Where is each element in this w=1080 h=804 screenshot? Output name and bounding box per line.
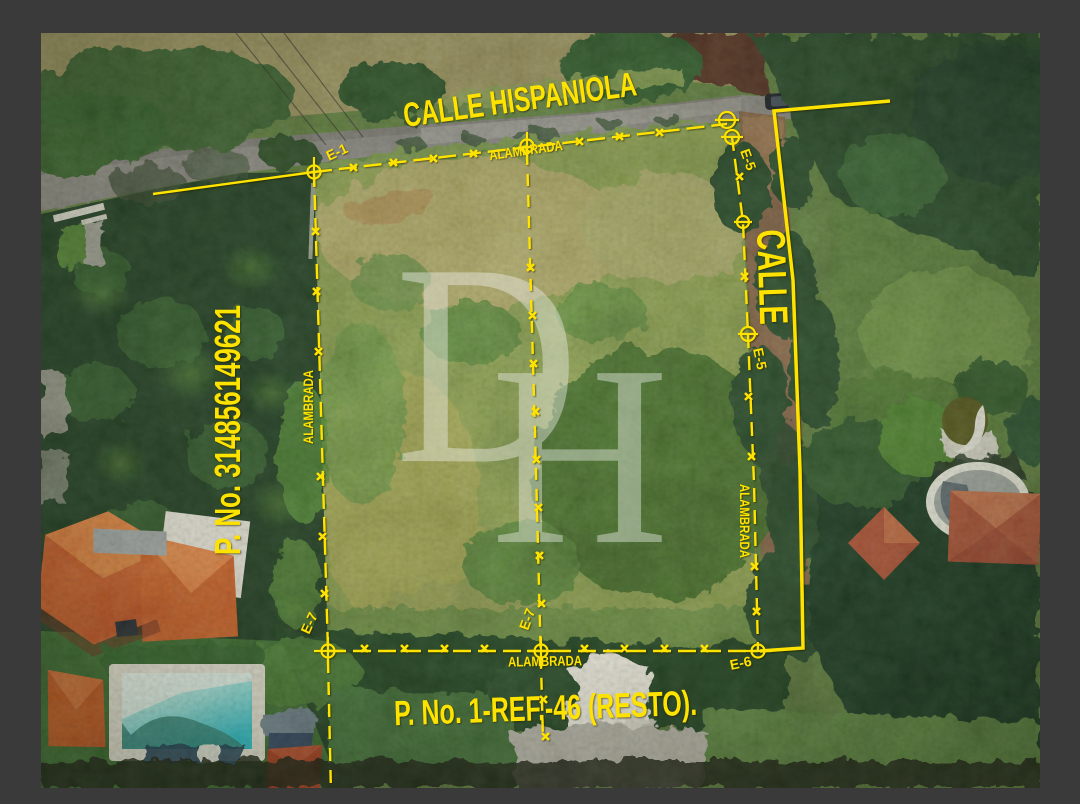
svg-text:P. No. 314856149621: P. No. 314856149621 xyxy=(207,305,248,555)
svg-text:ALAMBRADA: ALAMBRADA xyxy=(300,370,316,444)
svg-text:H: H xyxy=(491,312,669,598)
svg-text:ALAMBRADA: ALAMBRADA xyxy=(737,484,753,558)
svg-text:CALLE: CALLE xyxy=(748,229,795,325)
svg-text:ALAMBRADA: ALAMBRADA xyxy=(508,652,582,669)
